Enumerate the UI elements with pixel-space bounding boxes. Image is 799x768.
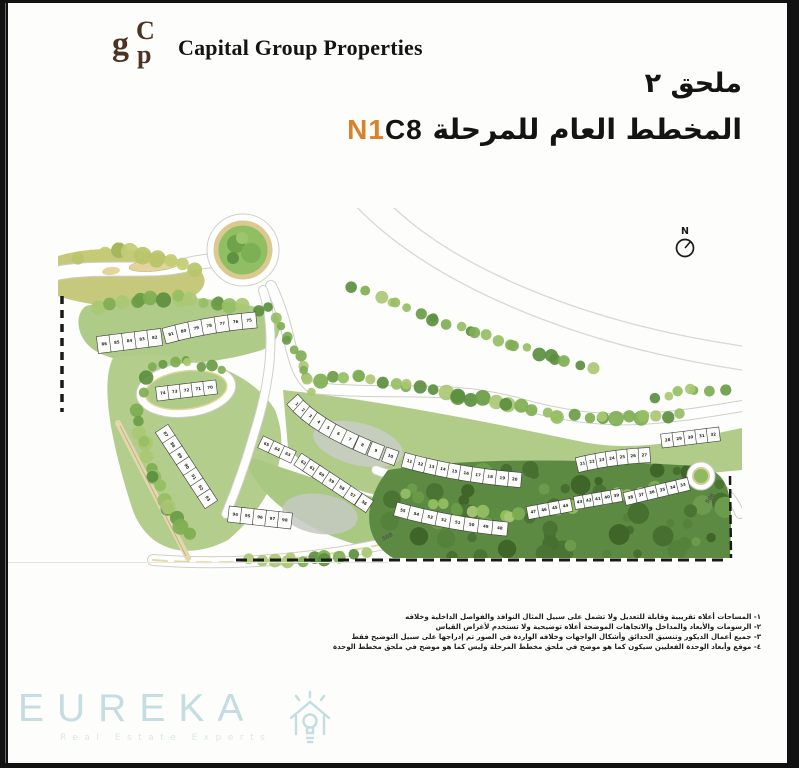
- svg-text:30: 30: [687, 434, 693, 440]
- unit-44: 44: [558, 498, 572, 513]
- svg-text:42: 42: [586, 497, 593, 503]
- footnote-line: ٢- الرسومات والأبعاد والمداخل والاتجاهات…: [201, 622, 761, 632]
- svg-text:49: 49: [483, 523, 489, 529]
- scan-border-top: [0, 0, 799, 3]
- svg-text:15: 15: [451, 468, 458, 474]
- footnote-line: ٣- جميع أعمال الديكور وتنسيق الحدائق وأش…: [201, 632, 761, 642]
- svg-text:74: 74: [160, 390, 166, 396]
- svg-text:51: 51: [455, 519, 462, 525]
- svg-text:70: 70: [207, 384, 213, 390]
- disclaimer-footnotes: ١- المساحات أعلاه تقريبية وقابلة للتعديل…: [201, 612, 761, 653]
- roundabout-small: [687, 462, 715, 490]
- svg-text:20: 20: [512, 476, 518, 481]
- svg-text:32: 32: [710, 431, 716, 437]
- scan-border-left: [0, 0, 8, 768]
- svg-text:27: 27: [641, 452, 647, 457]
- scan-border-bottom: [0, 763, 799, 768]
- svg-text:39: 39: [613, 492, 620, 498]
- unit-75: 75: [241, 312, 257, 329]
- unit-48: 48: [492, 521, 509, 536]
- svg-text:47: 47: [530, 509, 537, 515]
- scanned-page: { "header": { "monogram": { "g": "g", "c…: [0, 0, 799, 768]
- unit-82: 82: [147, 328, 163, 347]
- watermark-tagline: Real Estate Experts: [60, 733, 271, 743]
- unit-26: 26: [627, 448, 640, 464]
- footnote-line: ٤- موقع وأبعاد الوحدة الفعليين سيكون كما…: [201, 642, 761, 652]
- svg-text:44: 44: [562, 503, 569, 509]
- svg-text:71: 71: [195, 386, 201, 392]
- svg-text:78: 78: [206, 323, 213, 329]
- svg-text:83: 83: [139, 336, 145, 342]
- phase-code: N1C8: [347, 114, 423, 145]
- unit-33: 33: [676, 477, 691, 492]
- eureka-house-bulb-icon: [281, 688, 339, 746]
- watermark-name: EUREKA: [18, 688, 271, 731]
- svg-text:86: 86: [101, 341, 107, 347]
- gcp-monogram-icon: g C p: [112, 22, 164, 74]
- svg-text:16: 16: [463, 470, 470, 476]
- svg-text:75: 75: [246, 317, 252, 323]
- svg-text:19: 19: [499, 475, 505, 481]
- eureka-watermark: EUREKA Real Estate Experts: [18, 688, 339, 746]
- page-title: المخطط العام للمرحلة N1C8: [347, 113, 742, 146]
- roundabout-large: [207, 214, 279, 286]
- svg-text:43: 43: [576, 499, 583, 505]
- unit-27: 27: [638, 447, 650, 463]
- svg-text:46: 46: [541, 507, 548, 513]
- svg-text:72: 72: [183, 387, 189, 393]
- svg-text:98: 98: [282, 517, 288, 523]
- svg-text:97: 97: [269, 516, 275, 522]
- svg-text:24: 24: [609, 455, 615, 461]
- unit-20: 20: [508, 471, 522, 487]
- svg-text:17: 17: [475, 472, 481, 478]
- svg-text:45: 45: [552, 505, 559, 511]
- company-logo: g C p Capital Group Properties: [112, 22, 423, 74]
- document-titles: ملحق ٢ المخطط العام للمرحلة N1C8: [347, 68, 742, 146]
- svg-text:31: 31: [699, 433, 705, 439]
- svg-text:29: 29: [676, 436, 682, 442]
- svg-text:25: 25: [619, 454, 625, 460]
- svg-text:77: 77: [219, 320, 225, 326]
- unit-98: 98: [277, 512, 292, 529]
- scan-border-right: [787, 0, 799, 768]
- svg-text:N: N: [681, 226, 689, 237]
- paper-crease: [8, 562, 388, 563]
- svg-text:94: 94: [232, 511, 238, 517]
- unit-19: 19: [495, 470, 510, 486]
- svg-text:96: 96: [257, 514, 263, 520]
- svg-text:76: 76: [233, 319, 239, 325]
- svg-text:52: 52: [441, 517, 448, 523]
- site-plan: 8685848382818079787776757473727170878889…: [58, 208, 742, 593]
- svg-text:48: 48: [497, 525, 503, 531]
- svg-text:18: 18: [487, 474, 493, 480]
- svg-text:73: 73: [172, 389, 178, 395]
- svg-text:84: 84: [126, 338, 132, 344]
- svg-text:40: 40: [604, 494, 611, 500]
- unit-70: 70: [203, 380, 218, 395]
- north-compass-icon: N: [677, 226, 694, 257]
- svg-text:50: 50: [469, 522, 475, 528]
- appendix-title: ملحق ٢: [347, 68, 742, 99]
- footnote-line: ١- المساحات أعلاه تقريبية وقابلة للتعديل…: [201, 612, 761, 622]
- svg-text:82: 82: [152, 334, 158, 340]
- company-name: Capital Group Properties: [178, 35, 423, 61]
- svg-text:41: 41: [595, 496, 602, 502]
- unit-39: 39: [610, 488, 623, 503]
- svg-text:23: 23: [599, 457, 606, 463]
- svg-text:26: 26: [630, 453, 636, 458]
- svg-text:85: 85: [114, 339, 120, 345]
- svg-text:95: 95: [245, 513, 251, 519]
- unit-32: 32: [706, 427, 720, 442]
- svg-text:28: 28: [665, 437, 671, 443]
